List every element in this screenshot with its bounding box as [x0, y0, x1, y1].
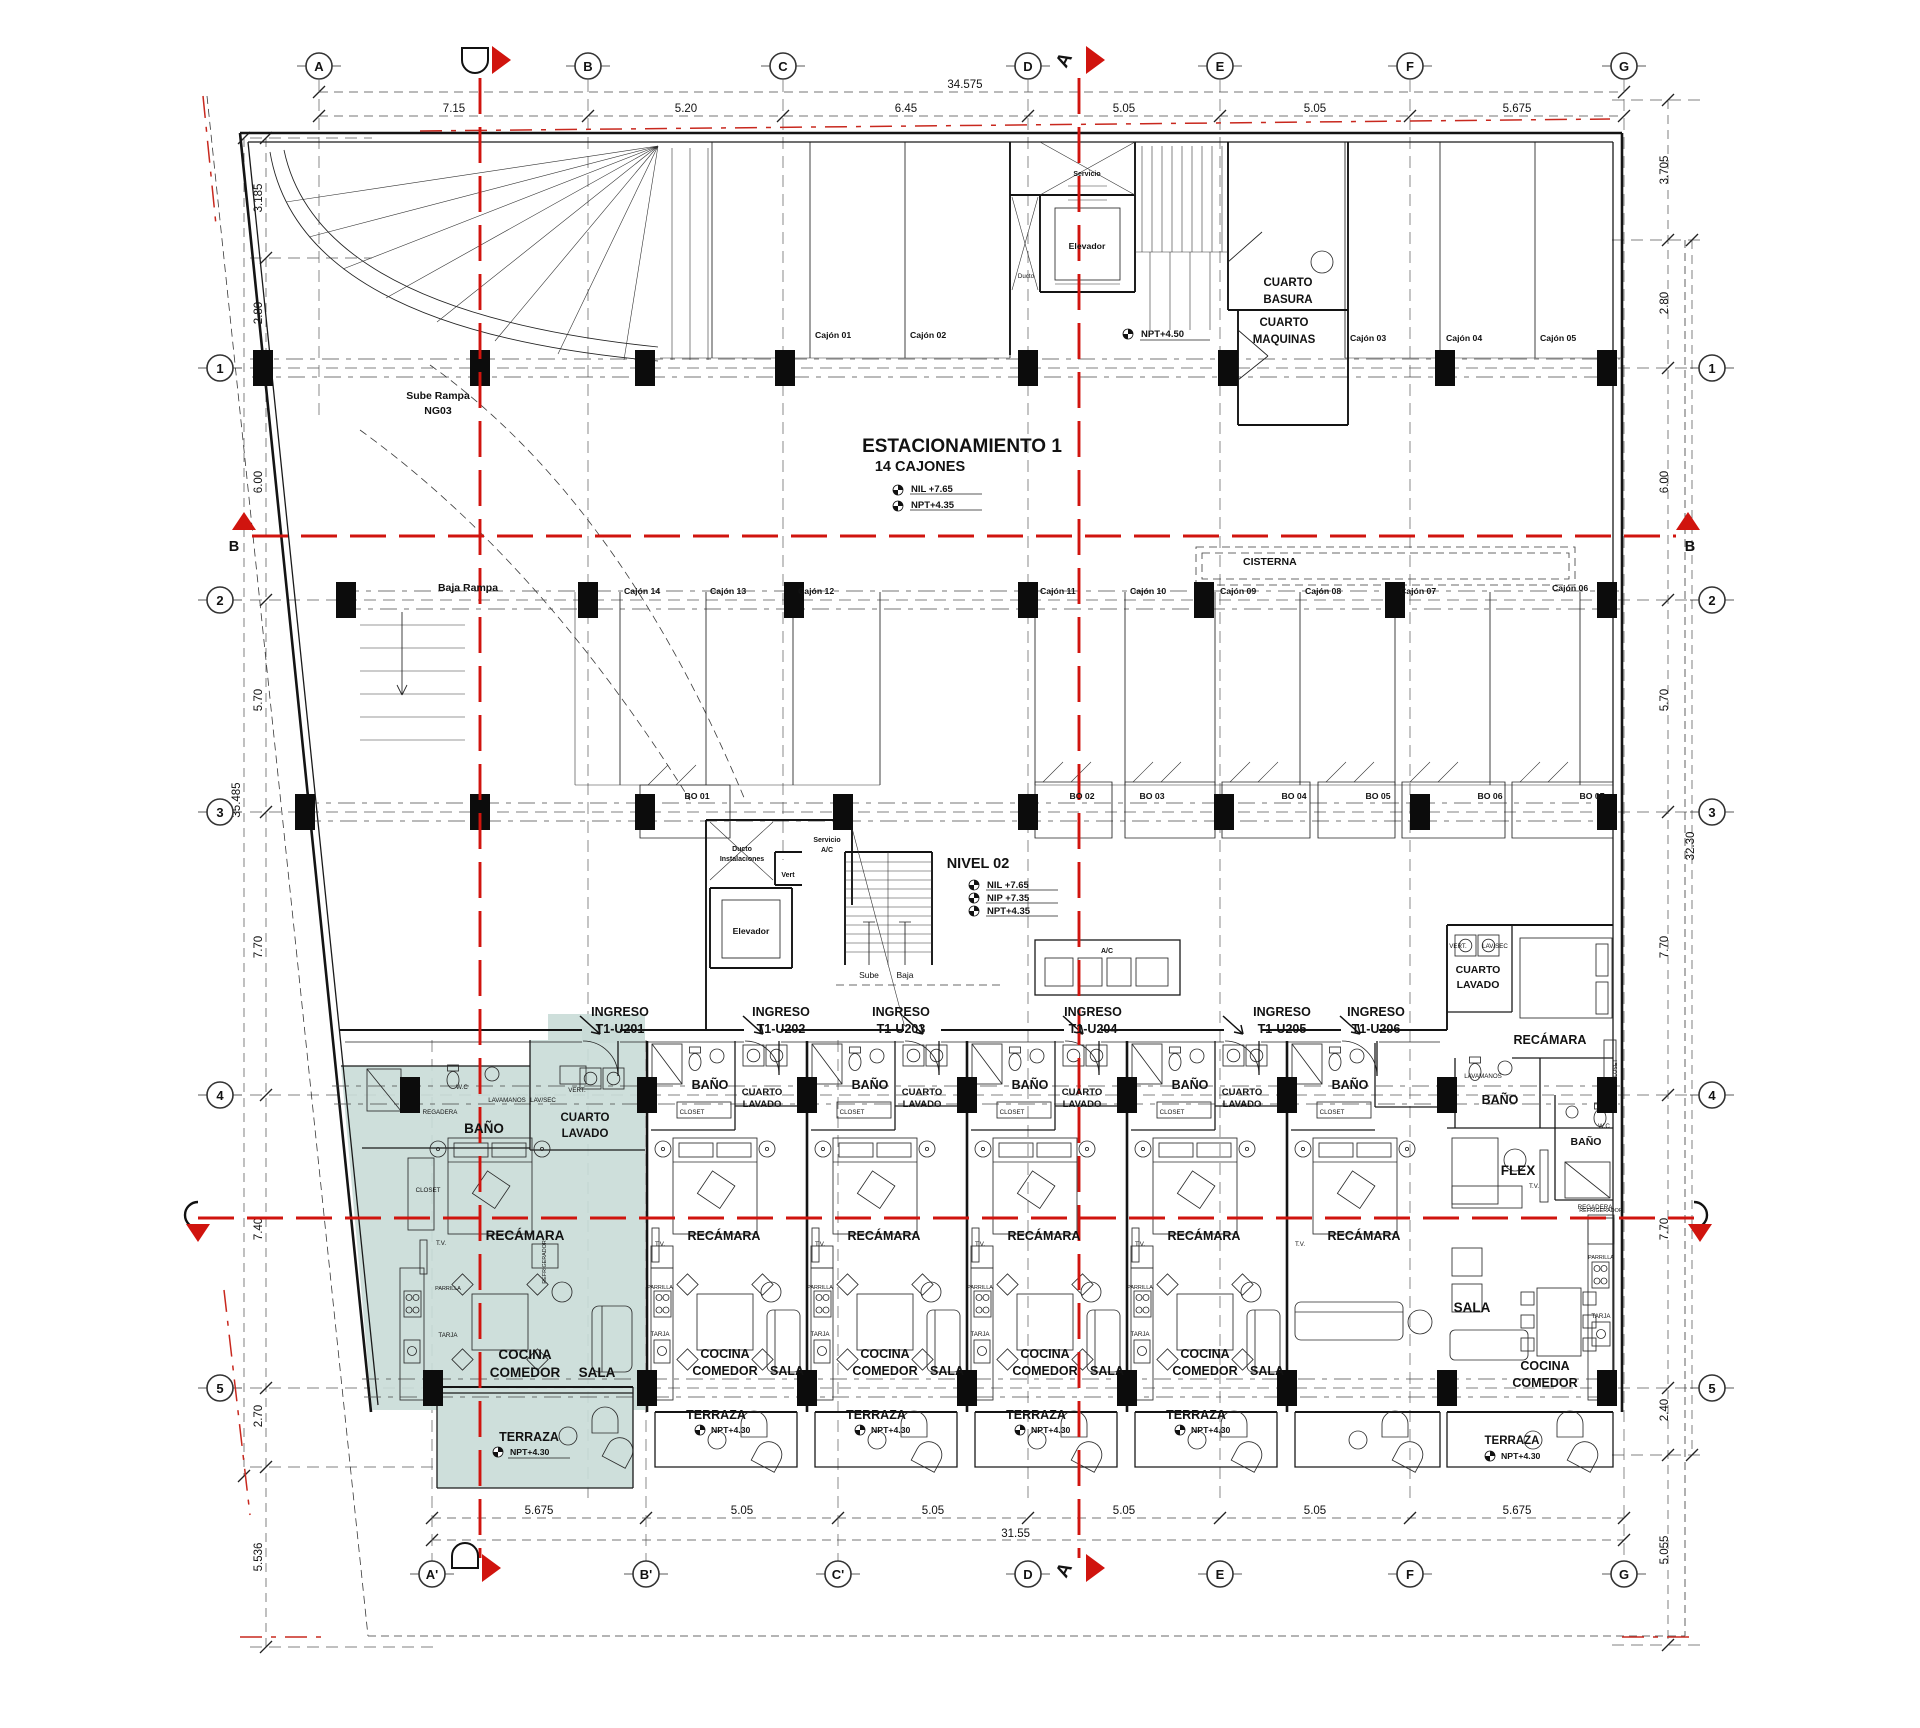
- u205-comedor: COMEDOR: [1172, 1364, 1237, 1378]
- cisterna-label: CISTERNA: [1243, 556, 1297, 568]
- servicio-ac-line2: A/C: [821, 847, 833, 854]
- u201-vert: VERT.: [568, 1087, 586, 1094]
- elevador-mid-label: Elevador: [733, 926, 770, 936]
- ingreso-u202-code: T1-U202: [757, 1022, 806, 1036]
- u205-cuarto-lavado-2: LAVADO: [1223, 1099, 1262, 1110]
- u203-comedor: COMEDOR: [852, 1364, 917, 1378]
- u201-refrigerador: REFRIGERADOR: [542, 1240, 548, 1284]
- stall-cajon-08: Cajón 08: [1305, 586, 1341, 596]
- floor-plan-drawing: 34.575 7.15 5.20 6.45 5.05 5.05 5.675 5.…: [0, 0, 1920, 1728]
- bo-07: BO 07: [1579, 791, 1604, 801]
- u203-bano: BAÑO: [852, 1077, 889, 1092]
- u206-bano-strip: BAÑO: [1332, 1077, 1369, 1092]
- u204-recamara: RECÁMARA: [1008, 1228, 1081, 1243]
- ramp-spiral: [270, 146, 745, 800]
- bo-03: BO 03: [1139, 791, 1164, 801]
- nivel-02-title: NIVEL 02: [947, 856, 1010, 872]
- bo-02: BO 02: [1069, 791, 1094, 801]
- wing-vert: VERT.: [1449, 943, 1467, 950]
- u203-sala: SALA: [930, 1364, 964, 1378]
- u203-cocina: COCINA: [860, 1347, 909, 1361]
- ingreso-u203: INGRESO: [872, 1005, 930, 1019]
- floor-plan-sheet: 34.575 7.15 5.20 6.45 5.05 5.05 5.675 5.…: [0, 0, 1920, 1728]
- u204-comedor: COMEDOR: [1012, 1364, 1077, 1378]
- u204-tarja: TARJA: [970, 1331, 990, 1338]
- rampa-code-label: NG03: [424, 405, 452, 417]
- u204-sala: SALA: [1090, 1364, 1124, 1378]
- nivel02-nip: NIP +7.35: [987, 893, 1030, 904]
- u203-recamara: RECÁMARA: [848, 1228, 921, 1243]
- unit-t1-u206-wing-geometry: [1447, 925, 1616, 1472]
- dim-right-7: 2.40: [1659, 1399, 1671, 1421]
- stall-cajon-04: Cajón 04: [1446, 333, 1482, 343]
- u203-cuarto-lavado-2: LAVADO: [903, 1099, 942, 1110]
- bo-05: BO 05: [1365, 791, 1390, 801]
- nivel02-nil: NIL +7.65: [987, 880, 1030, 891]
- axis-g-bottom: G: [1619, 1567, 1629, 1582]
- wing-cuarto-lavado-1: CUARTO: [1456, 964, 1501, 976]
- axis-d: D: [1023, 59, 1032, 74]
- bo-01: BO 01: [684, 791, 709, 801]
- wing-closet: CLOSET: [1613, 1059, 1619, 1081]
- servicio-ac-line1: Servicio: [813, 837, 840, 844]
- wing-flex: FLEX: [1501, 1163, 1536, 1178]
- wing-sala: SALA: [1454, 1300, 1491, 1315]
- u204-bano: BAÑO: [1012, 1077, 1049, 1092]
- stall-cajon-14: Cajón 14: [624, 586, 660, 596]
- u201-parrilla: PARRILLA: [435, 1286, 461, 1292]
- estacionamiento-subtitle: 14 CAJONES: [875, 459, 966, 475]
- ingreso-u205-code: T1-U205: [1258, 1022, 1307, 1036]
- dim-bottom-overall: 31.55: [1001, 1528, 1030, 1540]
- u203-npt430: NPT+4.30: [871, 1425, 911, 1435]
- cuarto-basura-line2: BASURA: [1263, 294, 1312, 306]
- axis-bubbles-right: 1 2 3 4 5: [1690, 355, 1734, 1401]
- dim-top-2: 5.20: [675, 103, 697, 115]
- section-marker-bline-right: B: [1676, 512, 1700, 555]
- axis-2-right: 2: [1708, 593, 1715, 608]
- ingreso-u201-code: T1-U201: [596, 1022, 645, 1036]
- stall-cajon-01: Cajón 01: [815, 330, 851, 340]
- wing-bano-1: BAÑO: [1482, 1092, 1519, 1107]
- u205-cuarto-lavado-1: CUARTO: [1222, 1087, 1262, 1098]
- sube-stair-label: Sube: [859, 970, 879, 980]
- wing-comedor: COMEDOR: [1512, 1376, 1577, 1390]
- u202-terraza: TERRAZA: [686, 1408, 746, 1422]
- baja-rampa-label: Baja Rampa: [438, 582, 498, 594]
- dim-left-7: 2.70: [253, 1405, 265, 1427]
- wing-bano-2: BAÑO: [1571, 1135, 1602, 1148]
- u203-tv: T.V.: [815, 1241, 825, 1248]
- u204-terraza: TERRAZA: [1006, 1408, 1066, 1422]
- u201-closet: CLOSET: [416, 1187, 441, 1194]
- dim-bottom-6: 5.675: [1503, 1505, 1532, 1517]
- ingreso-u202: INGRESO: [752, 1005, 810, 1019]
- section-b-letter-right: B: [1685, 539, 1695, 555]
- dim-top-4: 5.05: [1113, 103, 1135, 115]
- u202-npt430: NPT+4.30: [711, 1425, 751, 1435]
- u206-recamara-strip: RECÁMARA: [1328, 1228, 1401, 1243]
- wing-cocina: COCINA: [1520, 1359, 1569, 1373]
- u206-closet-strip: CLOSET: [1320, 1109, 1345, 1116]
- u205-recamara: RECÁMARA: [1168, 1228, 1241, 1243]
- axis-5-right: 5: [1708, 1381, 1715, 1396]
- axis-d-bottom: D: [1023, 1567, 1032, 1582]
- wing-npt430: NPT+4.30: [1501, 1451, 1541, 1461]
- cuarto-basura-line1: CUARTO: [1264, 277, 1313, 289]
- core-mid: [706, 820, 1180, 1030]
- wing-tv: T.V.: [1529, 1183, 1539, 1190]
- axis-g: G: [1619, 59, 1629, 74]
- stall-cajon-06: Cajón 06: [1552, 583, 1588, 593]
- estacionamiento-title: ESTACIONAMIENTO 1: [862, 436, 1062, 457]
- section-marker-b-top: [462, 46, 511, 74]
- u205-tarja: TARJA: [1130, 1331, 1150, 1338]
- wing-wc-2: W.C: [1598, 1123, 1610, 1130]
- cuarto-maquinas-line1: CUARTO: [1260, 317, 1309, 329]
- level-npt-parking: NPT+4.35: [911, 500, 955, 511]
- ac-label: A/C: [1101, 948, 1113, 955]
- ingreso-u203-code: T1-U203: [877, 1022, 926, 1036]
- u201-regadera: REGADERA: [423, 1109, 459, 1116]
- u201-tarja: TARJA: [438, 1332, 458, 1339]
- dim-right-5: 7.70: [1659, 936, 1671, 958]
- ingreso-u201: INGRESO: [591, 1005, 649, 1019]
- u205-tv: T.V.: [1135, 1241, 1145, 1248]
- vert-mid-label: Vert: [781, 872, 795, 879]
- ingreso-u206-code: T1-U206: [1352, 1022, 1401, 1036]
- axis-a-prime: A': [426, 1567, 438, 1582]
- u205-terraza: TERRAZA: [1166, 1408, 1226, 1422]
- axis-a: A: [314, 59, 324, 74]
- u203-cuarto-lavado-1: CUARTO: [902, 1087, 942, 1098]
- u204-parrilla: PARRILLA: [967, 1285, 993, 1291]
- u204-closet: CLOSET: [1000, 1109, 1025, 1116]
- u202-tv: T.V.: [655, 1241, 665, 1248]
- u201-comedor: COMEDOR: [490, 1365, 561, 1380]
- u205-cocina: COCINA: [1180, 1347, 1229, 1361]
- section-marker-cline-left: [185, 1202, 210, 1242]
- stall-cajon-12: Cajón 12: [798, 586, 834, 596]
- section-b-letter-left: B: [229, 539, 239, 555]
- axis-f-bottom: F: [1406, 1567, 1414, 1582]
- u201-cuarto-lavado-2: LAVADO: [562, 1128, 609, 1140]
- ingreso-u204-code: T1-U204: [1069, 1022, 1118, 1036]
- u202-parrilla: PARRILLA: [647, 1285, 673, 1291]
- dim-bottom-4: 5.05: [1113, 1505, 1135, 1517]
- axis-b: B: [583, 59, 592, 74]
- ingreso-u204: INGRESO: [1064, 1005, 1122, 1019]
- dim-right-3: 6.00: [1659, 471, 1671, 493]
- wing-cuarto-lavado-2: LAVADO: [1457, 979, 1500, 991]
- section-marker-a-bottom: A: [1052, 1554, 1105, 1582]
- stall-cajon-09: Cajón 09: [1220, 586, 1256, 596]
- u205-parrilla: PARRILLA: [1127, 1285, 1153, 1291]
- axis-3-right: 3: [1708, 805, 1715, 820]
- highlight-unit-t1-u201: [341, 1014, 645, 1488]
- axis-1-left: 1: [216, 361, 223, 376]
- u202-recamara: RECÁMARA: [688, 1228, 761, 1243]
- axis-4-left: 4: [216, 1088, 224, 1103]
- u201-lavamanos: LAVAMANOS: [488, 1097, 526, 1104]
- wing-recamara: RECÁMARA: [1514, 1032, 1587, 1047]
- ingreso-u205: INGRESO: [1253, 1005, 1311, 1019]
- u204-tv: T.V.: [975, 1241, 985, 1248]
- stall-cajon-11: Cajón 11: [1040, 586, 1076, 596]
- axis-e: E: [1216, 59, 1225, 74]
- axis-bubbles-left: 1 2 3 4 5: [198, 355, 242, 1401]
- storage-row: [640, 762, 1613, 838]
- axis-4-right: 4: [1708, 1088, 1716, 1103]
- u206-tv-strip: T.V.: [1295, 1241, 1305, 1248]
- u201-cocina: COCINA: [498, 1347, 551, 1362]
- u205-npt430: NPT+4.30: [1191, 1425, 1231, 1435]
- u203-terraza: TERRAZA: [846, 1408, 906, 1422]
- axis-c: C: [778, 59, 788, 74]
- u201-wc: W.C: [456, 1084, 468, 1091]
- cuarto-maquinas-line2: MAQUINAS: [1253, 334, 1316, 346]
- dim-right-6: 7.70: [1659, 1218, 1671, 1240]
- u201-terraza: TERRAZA: [499, 1430, 559, 1444]
- axis-2-left: 2: [216, 593, 223, 608]
- section-marker-a-top: A: [1052, 46, 1105, 74]
- u201-sala: SALA: [579, 1365, 616, 1380]
- axis-c-prime: C': [832, 1567, 844, 1582]
- wing-refrigerador: REFRIGERADOR: [1579, 1208, 1623, 1214]
- dim-left-3: 6.00: [253, 471, 265, 493]
- section-a-letter: A: [1052, 49, 1077, 71]
- u201-npt430: NPT+4.30: [510, 1447, 550, 1457]
- dim-left-offset: 5.536: [253, 1543, 265, 1572]
- u204-npt430: NPT+4.30: [1031, 1425, 1071, 1435]
- wing-terraza: TERRAZA: [1485, 1435, 1540, 1447]
- wing-lavamanos: LAVAMANOS: [1464, 1073, 1502, 1080]
- dim-bottom-1: 5.675: [525, 1505, 554, 1517]
- wing-tarja: TARJA: [1591, 1313, 1611, 1320]
- axis-1-right: 1: [1708, 361, 1715, 376]
- stall-cajon-13: Cajón 13: [710, 586, 746, 596]
- dim-top-5: 5.05: [1304, 103, 1326, 115]
- section-a-letter-bottom: A: [1052, 1559, 1077, 1581]
- baja-stair-label: Baja: [896, 970, 913, 980]
- u204-cuarto-lavado-1: CUARTO: [1062, 1087, 1102, 1098]
- dim-top-overall: 34.575: [947, 79, 982, 91]
- nivel02-npt: NPT+4.35: [987, 906, 1031, 917]
- dim-top-1: 7.15: [443, 103, 465, 115]
- axis-e-bottom: E: [1216, 1567, 1225, 1582]
- dim-right-offset: 5.055: [1659, 1536, 1671, 1565]
- axis-3-left: 3: [216, 805, 223, 820]
- section-marker-b-bottom: [452, 1543, 501, 1582]
- u202-tarja: TARJA: [650, 1331, 670, 1338]
- dim-left-4: 5.70: [253, 689, 265, 711]
- ducto-top-label: Ducto: [1018, 273, 1035, 280]
- bo-06: BO 06: [1477, 791, 1502, 801]
- dim-right-overall: 32.30: [1685, 832, 1697, 861]
- dim-bottom-3: 5.05: [922, 1505, 944, 1517]
- dim-right-1: 3.705: [1659, 156, 1671, 185]
- u204-cuarto-lavado-2: LAVADO: [1063, 1099, 1102, 1110]
- stall-cajon-03: Cajón 03: [1350, 333, 1386, 343]
- wing-parrilla: PARRILLA: [1588, 1255, 1614, 1261]
- dim-right-4: 5.70: [1659, 689, 1671, 711]
- wing-lavsec: LAV/SEC: [1482, 943, 1508, 950]
- section-marker-bline-left: B: [229, 512, 256, 555]
- u202-cuarto-lavado-2: LAVADO: [743, 1099, 782, 1110]
- u201-cuarto-lavado-1: CUARTO: [561, 1112, 610, 1124]
- section-marker-cline-right: [1688, 1202, 1712, 1242]
- stall-cajon-10: Cajón 10: [1130, 586, 1166, 596]
- dim-top-3: 6.45: [895, 103, 917, 115]
- u205-sala: SALA: [1250, 1364, 1284, 1378]
- bo-04: BO 04: [1281, 791, 1306, 801]
- dim-right-2: 2.80: [1659, 292, 1671, 314]
- stall-cajon-02: Cajón 02: [910, 330, 946, 340]
- axis-b-prime: B': [640, 1567, 652, 1582]
- u202-cuarto-lavado-1: CUARTO: [742, 1087, 782, 1098]
- sube-rampa-label: Sube Rampa: [406, 390, 470, 402]
- u205-closet: CLOSET: [1160, 1109, 1185, 1116]
- servicio-top-label: Servicio: [1073, 171, 1100, 178]
- dim-top-6: 5.675: [1503, 103, 1532, 115]
- u205-bano: BAÑO: [1172, 1077, 1209, 1092]
- axis-f: F: [1406, 59, 1414, 74]
- elevador-top-label: Elevador: [1069, 241, 1106, 251]
- u201-tv: T.V.: [436, 1240, 446, 1247]
- u202-comedor: COMEDOR: [692, 1364, 757, 1378]
- u203-parrilla: PARRILLA: [807, 1285, 833, 1291]
- u201-bano: BAÑO: [464, 1121, 504, 1136]
- axis-5-left: 5: [216, 1381, 223, 1396]
- u202-sala: SALA: [770, 1364, 804, 1378]
- ingreso-u206: INGRESO: [1347, 1005, 1405, 1019]
- level-nil-parking: NIL +7.65: [911, 484, 954, 495]
- u202-bano: BAÑO: [692, 1077, 729, 1092]
- ducto-instalaciones-line2: Instalaciones: [720, 856, 764, 863]
- dim-left-6: 7.40: [253, 1218, 265, 1240]
- u203-closet: CLOSET: [840, 1109, 865, 1116]
- ducto-instalaciones-line1: Ducto: [732, 846, 752, 853]
- u201-lavsec: LAV/SEC: [530, 1097, 556, 1104]
- u204-cocina: COCINA: [1020, 1347, 1069, 1361]
- stall-cajon-07: Cajón 07: [1400, 586, 1436, 596]
- dim-bottom-2: 5.05: [731, 1505, 753, 1517]
- dim-left-5: 7.70: [253, 936, 265, 958]
- dim-bottom-5: 5.05: [1304, 1505, 1326, 1517]
- u202-cocina: COCINA: [700, 1347, 749, 1361]
- u202-closet: CLOSET: [680, 1109, 705, 1116]
- axis-bubbles-bottom: A' B' C' D E F G: [410, 1561, 1646, 1587]
- u203-tarja: TARJA: [810, 1331, 830, 1338]
- stall-cajon-05: Cajón 05: [1540, 333, 1576, 343]
- u201-recamara: RECÁMARA: [486, 1228, 565, 1243]
- level-npt-450: NPT+4.50: [1141, 329, 1184, 340]
